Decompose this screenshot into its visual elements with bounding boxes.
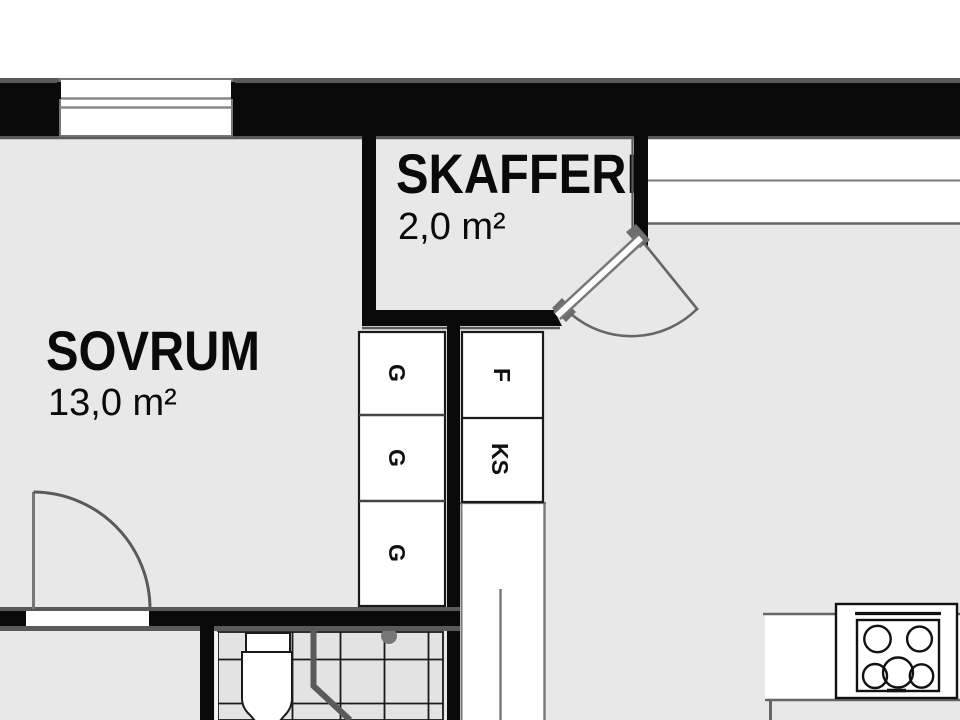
svg-text:KS: KS — [487, 443, 513, 475]
svg-text:F: F — [489, 368, 515, 382]
svg-text:2,0 m²: 2,0 m² — [398, 206, 506, 248]
svg-text:SOVRUM: SOVRUM — [46, 319, 260, 382]
svg-text:SKAFFERI: SKAFFERI — [396, 142, 640, 205]
svg-text:G: G — [384, 449, 410, 467]
svg-text:13,0 m²: 13,0 m² — [48, 382, 177, 424]
svg-text:G: G — [384, 364, 410, 382]
svg-text:G: G — [384, 544, 410, 562]
